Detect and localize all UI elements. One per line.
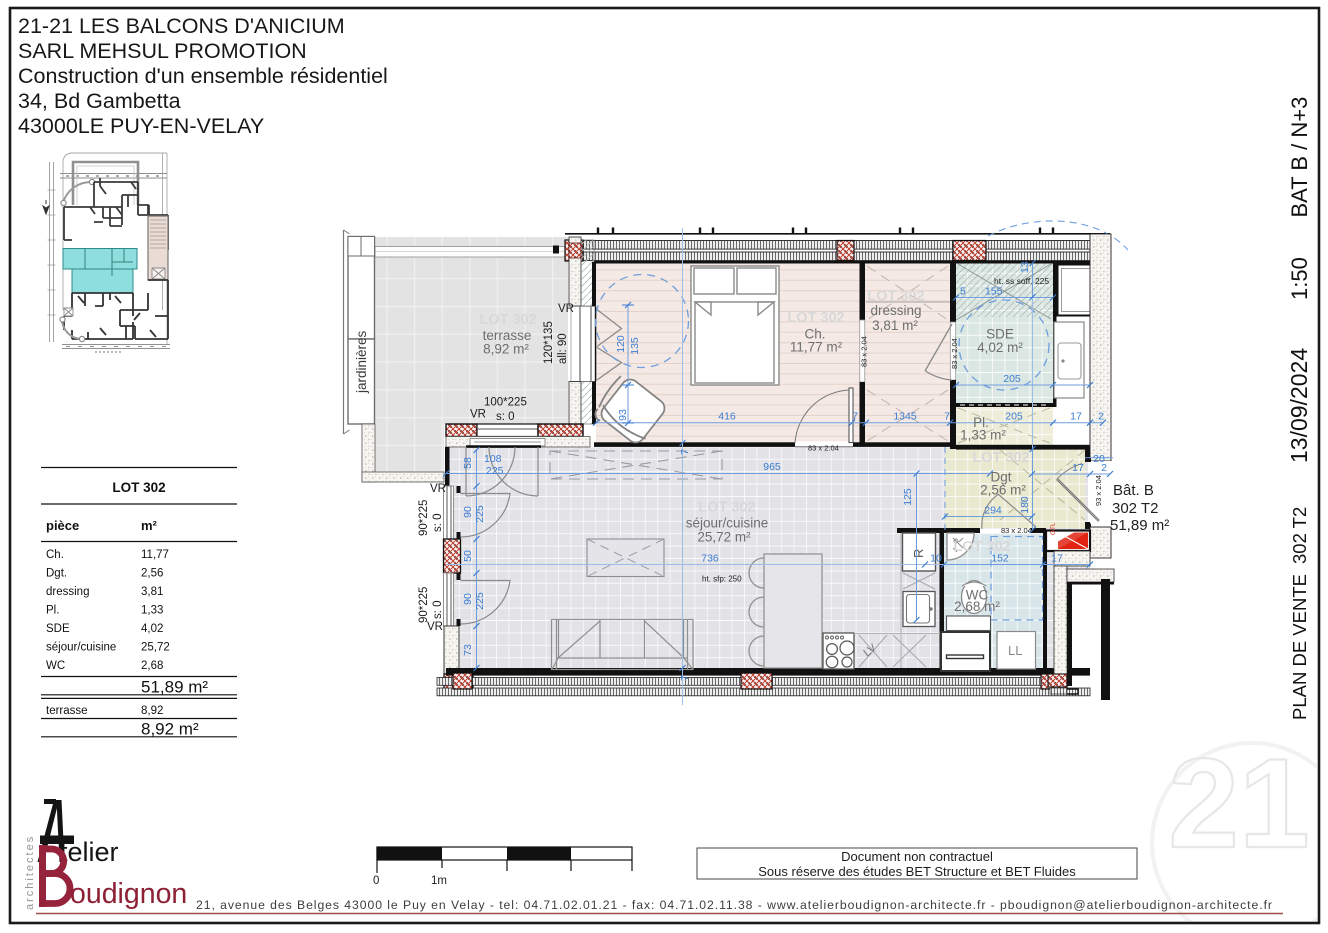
svg-text:Document non contractuel: Document non contractuel: [841, 849, 993, 864]
svg-text:2,68 m²: 2,68 m²: [954, 599, 1000, 614]
svg-text:3,81: 3,81: [141, 586, 163, 598]
svg-text:dressing: dressing: [46, 586, 89, 598]
svg-text:2,68: 2,68: [141, 660, 163, 672]
svg-text:séjour/cuisine: séjour/cuisine: [46, 642, 116, 654]
svg-text:21: 21: [1168, 732, 1309, 874]
svg-text:s: 0: s: 0: [496, 411, 515, 423]
svg-text:1345: 1345: [893, 411, 917, 423]
svg-text:8,92 m²: 8,92 m²: [141, 720, 199, 739]
svg-text:21, avenue des Belges 43000 le: 21, avenue des Belges 43000 le Puy en Ve…: [196, 898, 1273, 912]
svg-text:oudignon: oudignon: [70, 878, 187, 910]
svg-text:51,89 m²: 51,89 m²: [141, 678, 208, 697]
svg-text:965: 965: [763, 461, 781, 473]
svg-text:90*225: 90*225: [418, 500, 430, 536]
svg-text:225: 225: [474, 505, 486, 523]
svg-text:LOT 302: LOT 302: [972, 450, 1029, 466]
svg-text:4,02: 4,02: [141, 623, 163, 635]
svg-text:13/09/2024: 13/09/2024: [1286, 348, 1312, 463]
svg-text:93: 93: [617, 409, 629, 421]
svg-text:VR: VR: [430, 483, 446, 495]
svg-text:2: 2: [1098, 411, 1104, 423]
svg-text:1,33 m²: 1,33 m²: [960, 428, 1006, 443]
svg-text:ht. ss soff. 225: ht. ss soff. 225: [994, 276, 1049, 286]
svg-text:25,72 m²: 25,72 m²: [697, 530, 751, 545]
svg-text:GTL: GTL: [1050, 522, 1057, 535]
svg-text:51,89 m²: 51,89 m²: [1110, 517, 1169, 534]
svg-text:Ch.: Ch.: [46, 549, 64, 561]
svg-text:125: 125: [902, 488, 914, 506]
svg-text:25,72: 25,72: [141, 642, 170, 654]
svg-text:Dgt.: Dgt.: [46, 568, 67, 580]
svg-text:100*225: 100*225: [484, 397, 527, 409]
svg-text:SARL MEHSUL PROMOTION: SARL MEHSUL PROMOTION: [18, 39, 307, 63]
svg-text:PLAN DE VENTE: PLAN DE VENTE: [1289, 574, 1310, 720]
svg-text:2,56: 2,56: [141, 568, 163, 580]
svg-text:294: 294: [984, 505, 1002, 517]
svg-text:SDE: SDE: [46, 623, 70, 635]
svg-text:11,77: 11,77: [141, 549, 169, 561]
svg-text:LL: LL: [1008, 643, 1022, 658]
svg-text:Pl.: Pl.: [46, 605, 59, 617]
svg-text:2,56 m²: 2,56 m²: [980, 483, 1026, 498]
svg-text:pièce: pièce: [46, 518, 79, 533]
svg-text:20: 20: [1093, 453, 1105, 465]
svg-text:225: 225: [486, 465, 504, 477]
svg-text:11,77 m²: 11,77 m²: [790, 340, 843, 355]
svg-text:telier: telier: [60, 837, 119, 867]
svg-text:VR: VR: [427, 621, 443, 633]
svg-text:7: 7: [679, 449, 691, 455]
svg-text:7: 7: [944, 411, 950, 423]
svg-text:LOT 302: LOT 302: [112, 480, 165, 495]
svg-text:VR: VR: [470, 409, 486, 421]
svg-text:1,33: 1,33: [141, 605, 163, 617]
svg-text:83 x 2.04: 83 x 2.04: [1001, 526, 1032, 535]
svg-text:180: 180: [1019, 496, 1031, 514]
svg-text:Bât. B: Bât. B: [1113, 482, 1154, 499]
svg-text:83 x 2.04: 83 x 2.04: [860, 336, 869, 367]
svg-text:17: 17: [1072, 462, 1084, 474]
svg-text:83 x 2.04: 83 x 2.04: [950, 338, 959, 369]
svg-text:8,92 m²: 8,92 m²: [483, 342, 529, 357]
svg-text:architectes: architectes: [24, 835, 36, 910]
svg-text:Construction d'un ensemble rés: Construction d'un ensemble résidentiel: [18, 64, 388, 88]
svg-text:43000LE PUY-EN-VELAY: 43000LE PUY-EN-VELAY: [18, 114, 264, 138]
svg-text:terrasse: terrasse: [46, 705, 88, 717]
svg-text:90: 90: [462, 593, 474, 605]
svg-text:302 T2: 302 T2: [1112, 500, 1158, 517]
svg-text:séjour/cuisine: séjour/cuisine: [686, 516, 769, 531]
svg-text:21-21 LES BALCONS D'ANICIUM: 21-21 LES BALCONS D'ANICIUM: [18, 14, 345, 38]
svg-text:7: 7: [852, 411, 858, 423]
svg-text:73: 73: [462, 644, 474, 656]
svg-text:120*135: 120*135: [543, 321, 555, 364]
svg-text:17: 17: [1070, 411, 1082, 423]
svg-text:0: 0: [373, 875, 379, 887]
svg-text:90*225: 90*225: [418, 587, 430, 623]
svg-text:58: 58: [462, 457, 474, 469]
svg-text:Sous réserve des études BET St: Sous réserve des études BET Structure et…: [758, 864, 1076, 879]
svg-text:135: 135: [629, 337, 641, 355]
svg-text:ht. sfp: 250: ht. sfp: 250: [702, 575, 742, 584]
svg-text:m²: m²: [141, 518, 158, 533]
svg-text:LOT 302: LOT 302: [787, 310, 844, 326]
svg-text:1m: 1m: [431, 875, 447, 887]
svg-text:8,92: 8,92: [141, 705, 163, 717]
svg-text:LOT 302: LOT 302: [698, 500, 755, 516]
svg-text:1:50: 1:50: [1287, 257, 1312, 300]
svg-text:jardinières: jardinières: [354, 330, 369, 394]
svg-text:LOT 302: LOT 302: [953, 539, 1010, 555]
svg-text:LOT 302: LOT 302: [479, 312, 536, 328]
svg-text:R: R: [911, 549, 926, 558]
svg-text:4,02 m²: 4,02 m²: [977, 340, 1023, 355]
svg-text:WC: WC: [46, 660, 65, 672]
svg-text:7: 7: [679, 675, 691, 681]
svg-text:416: 416: [718, 411, 736, 423]
svg-text:302 T2: 302 T2: [1289, 507, 1310, 564]
svg-text:VR: VR: [558, 303, 574, 315]
svg-text:BAT B / N+3: BAT B / N+3: [1287, 97, 1312, 218]
svg-text:205: 205: [1005, 411, 1023, 423]
svg-text:s: 0: s: 0: [432, 513, 444, 532]
svg-text:5: 5: [960, 286, 966, 298]
svg-text:10: 10: [930, 553, 942, 565]
svg-text:13: 13: [1019, 261, 1031, 273]
svg-text:all: 90: all: 90: [557, 333, 569, 364]
svg-text:108: 108: [484, 453, 502, 465]
svg-text:34, Bd Gambetta: 34, Bd Gambetta: [18, 89, 181, 113]
svg-text:dressing: dressing: [870, 303, 921, 318]
svg-text:736: 736: [701, 553, 719, 565]
svg-text:225: 225: [474, 592, 486, 610]
svg-text:83 x 2.04: 83 x 2.04: [808, 444, 839, 453]
svg-text:120: 120: [615, 335, 627, 353]
svg-text:205: 205: [1003, 373, 1021, 385]
svg-text:17: 17: [1051, 553, 1063, 565]
svg-text:93 x 2.04: 93 x 2.04: [1094, 475, 1103, 506]
svg-text:50: 50: [462, 550, 474, 562]
svg-text:3,81 m²: 3,81 m²: [872, 318, 918, 333]
svg-text:90: 90: [462, 506, 474, 518]
svg-text:s: 0: s: 0: [432, 600, 444, 619]
svg-text:155: 155: [985, 286, 1003, 298]
